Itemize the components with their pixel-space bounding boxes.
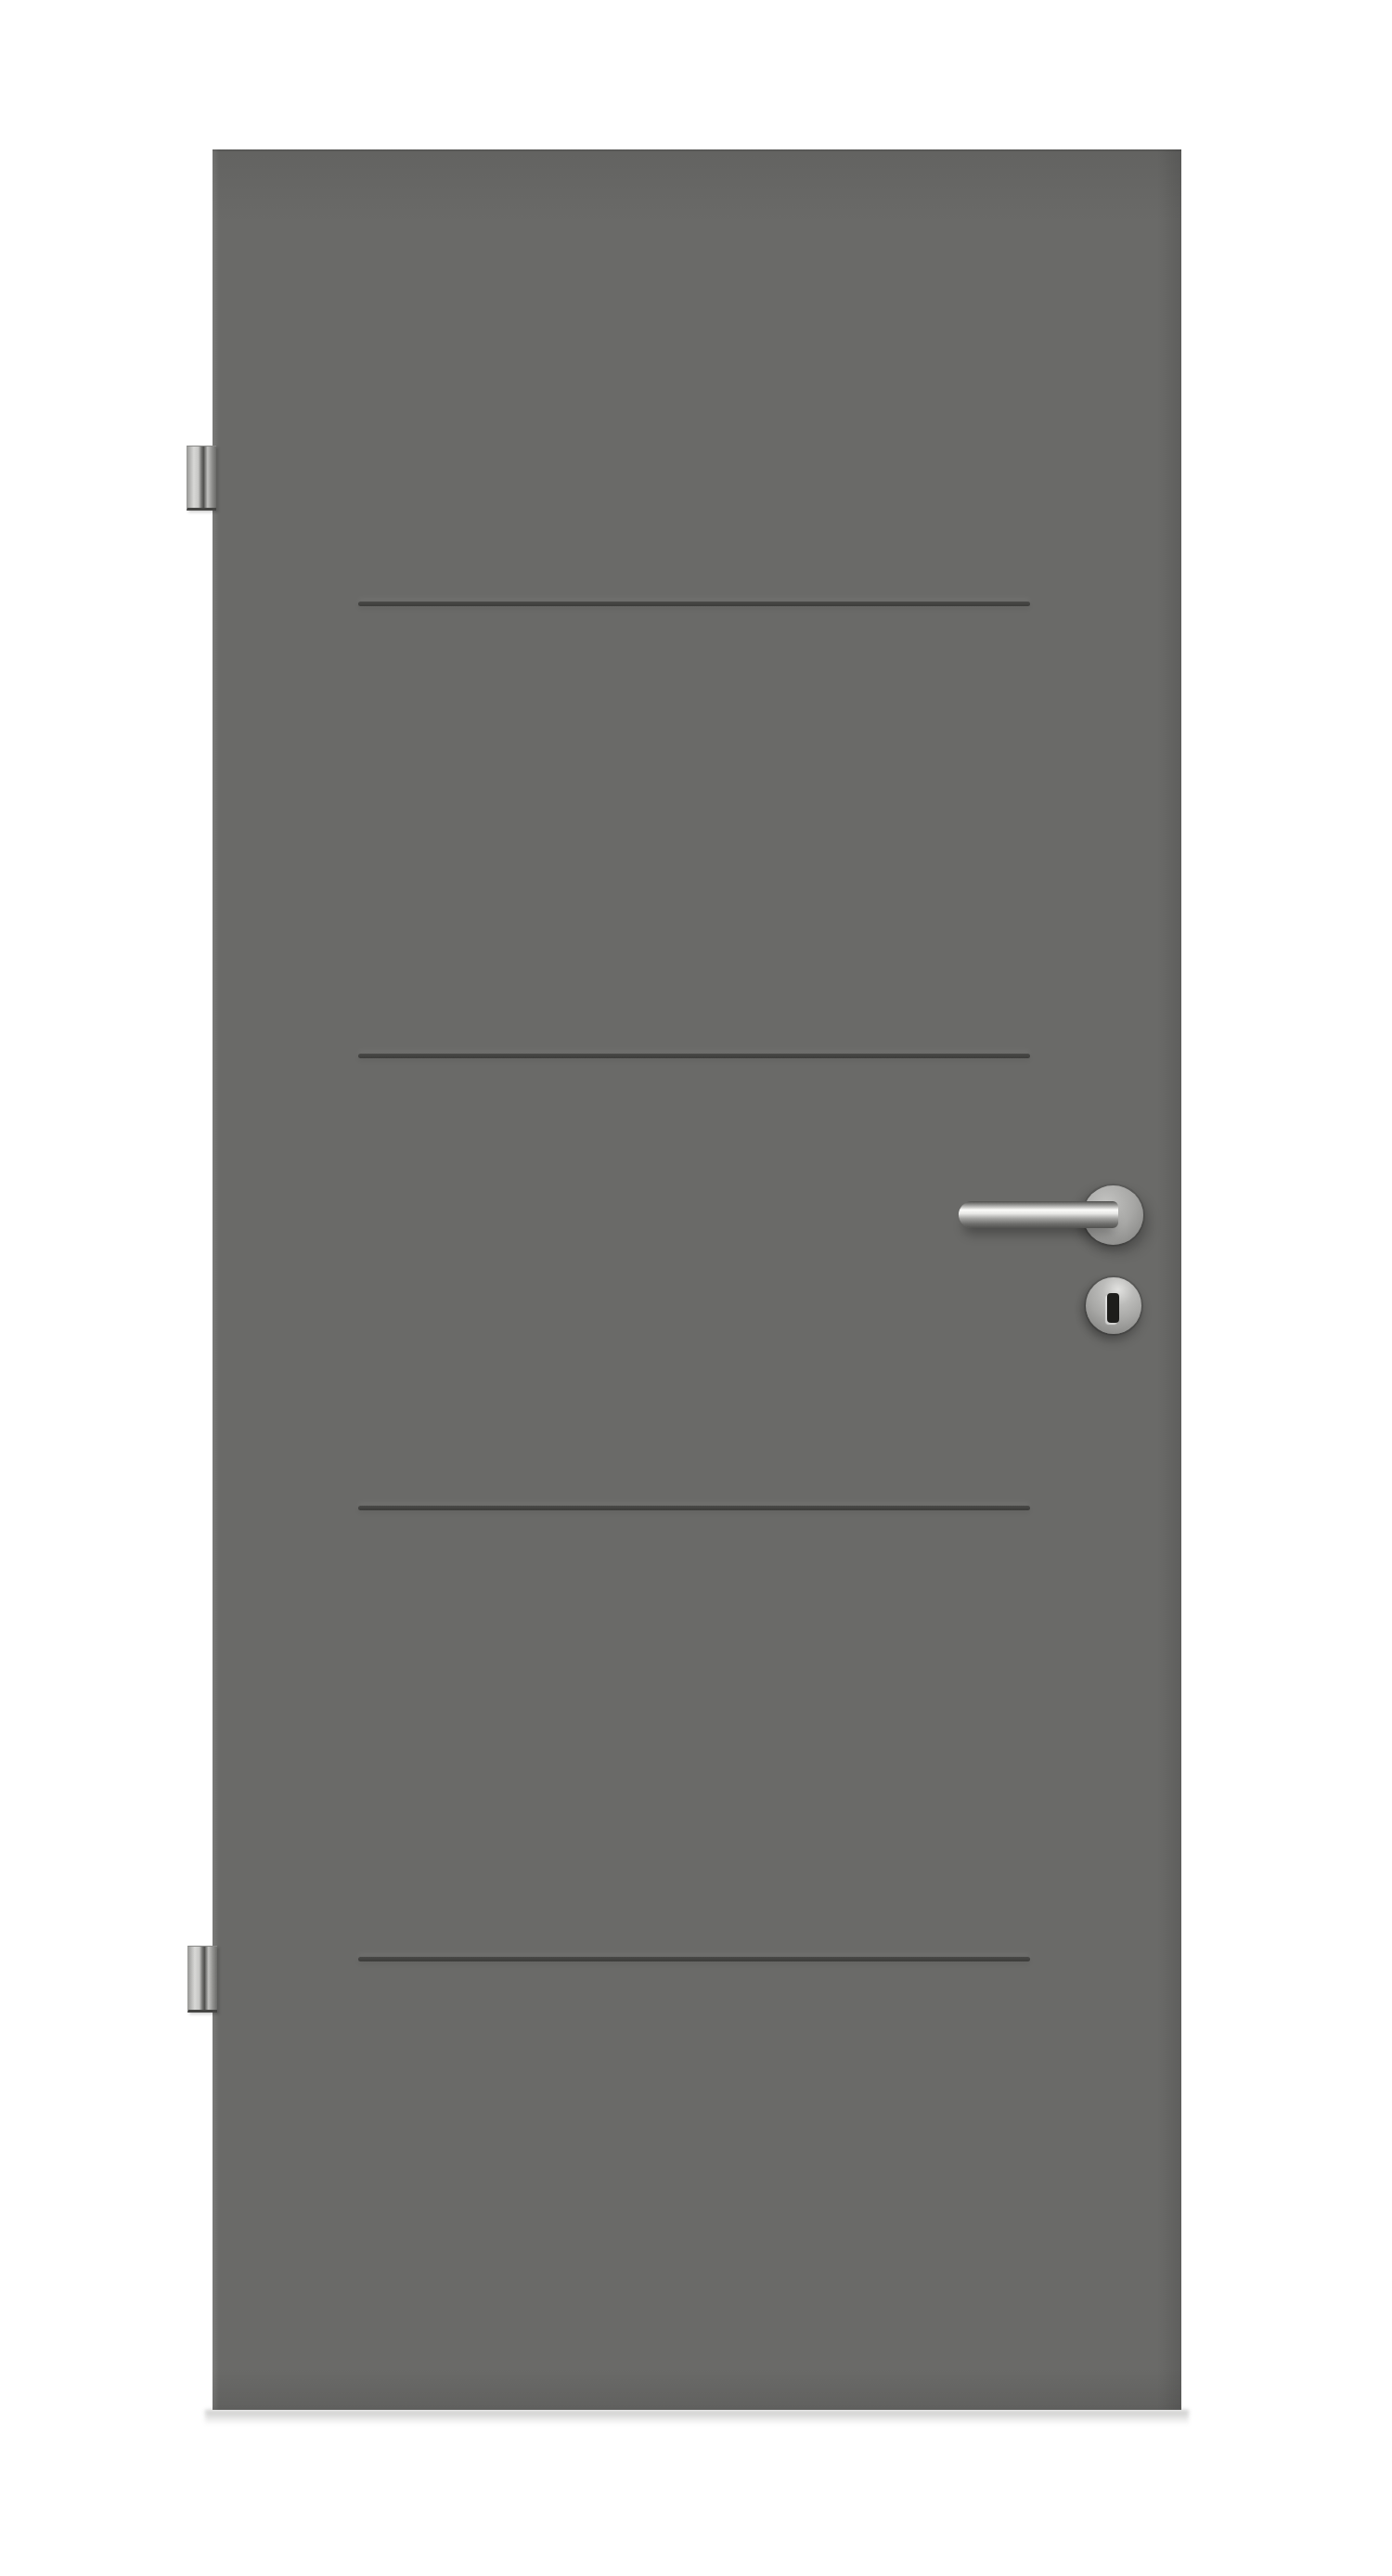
hinge-pin-icon xyxy=(213,473,219,482)
door-product-photo xyxy=(0,0,1392,2576)
groove-line xyxy=(358,1957,1030,1961)
keyhole-icon xyxy=(1107,1293,1119,1323)
hinge-pin-icon xyxy=(214,1974,220,1983)
groove-line xyxy=(358,1054,1030,1058)
door-floor-shadow xyxy=(205,2410,1189,2425)
door-panel xyxy=(213,149,1181,2410)
groove-line xyxy=(358,602,1030,606)
hinge-bottom xyxy=(187,1946,217,2013)
door-surface-shading xyxy=(213,149,1181,2410)
door-handle-lever xyxy=(959,1201,1118,1228)
groove-line xyxy=(358,1506,1030,1510)
hinge-top xyxy=(187,446,216,511)
